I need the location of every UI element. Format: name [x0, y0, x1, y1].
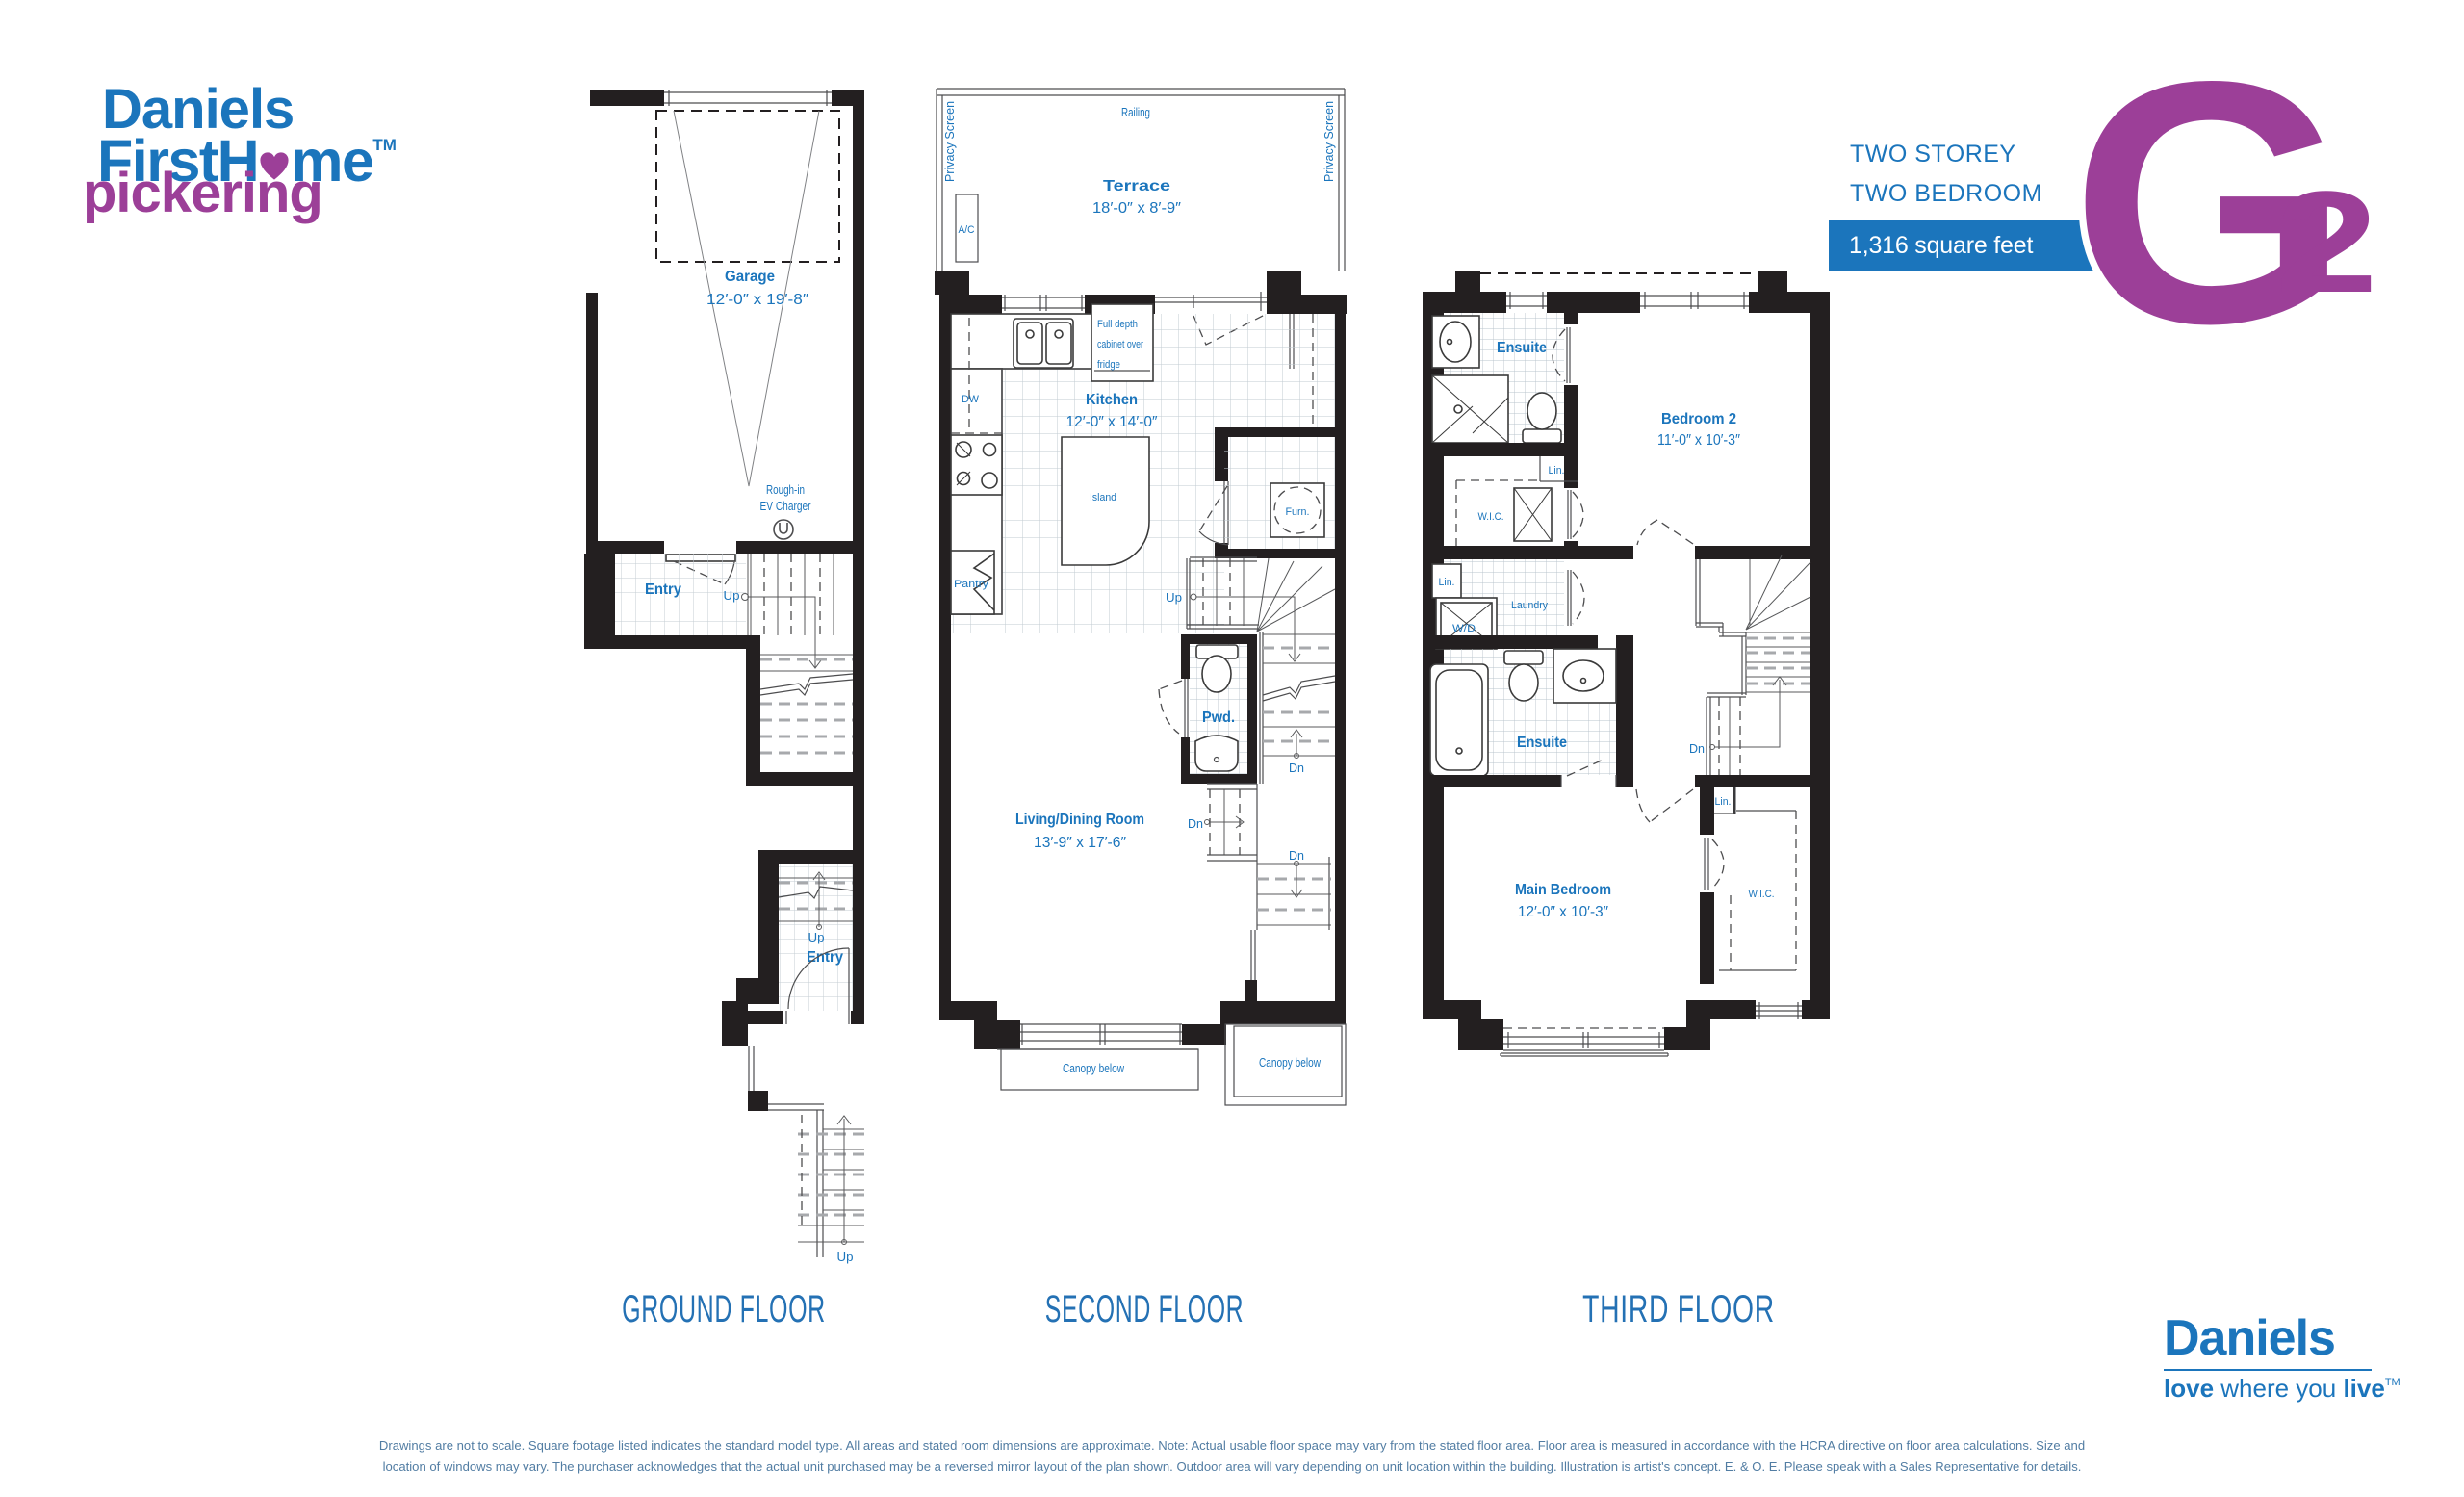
svg-text:W/D: W/D [1452, 623, 1476, 634]
svg-text:Entry: Entry [645, 581, 681, 598]
svg-text:Lin.: Lin. [1549, 465, 1565, 477]
svg-text:Up: Up [837, 1251, 854, 1264]
svg-text:DW: DW [962, 394, 980, 405]
svg-text:Dn: Dn [1289, 761, 1304, 775]
svg-text:cabinet over: cabinet over [1097, 339, 1143, 350]
svg-text:Furn.: Furn. [1286, 506, 1310, 518]
svg-text:Lin.: Lin. [1715, 796, 1732, 808]
svg-text:Full depth: Full depth [1097, 319, 1138, 330]
svg-text:Up: Up [1166, 591, 1182, 605]
svg-text:Dn: Dn [1289, 849, 1304, 863]
svg-text:Terrace: Terrace [1103, 178, 1170, 194]
svg-text:A/C: A/C [959, 224, 975, 236]
svg-text:Up: Up [724, 589, 740, 603]
svg-text:12′-0″ x 14′-0″: 12′-0″ x 14′-0″ [1066, 414, 1159, 430]
svg-text:W.I.C.: W.I.C. [1749, 889, 1775, 900]
svg-text:Privacy Screen: Privacy Screen [943, 101, 957, 182]
svg-text:Up: Up [808, 931, 825, 944]
svg-text:Railing: Railing [1121, 106, 1150, 119]
svg-text:Canopy below: Canopy below [1063, 1062, 1125, 1075]
svg-text:Living/Dining Room: Living/Dining Room [1015, 812, 1144, 828]
svg-text:11′-0″ x 10′-3″: 11′-0″ x 10′-3″ [1657, 432, 1740, 449]
svg-text:Kitchen: Kitchen [1086, 392, 1138, 408]
svg-text:Bedroom 2: Bedroom 2 [1661, 411, 1736, 427]
svg-text:Lin.: Lin. [1439, 577, 1455, 588]
svg-text:Laundry: Laundry [1511, 600, 1548, 611]
svg-text:13′-9″ x 17′-6″: 13′-9″ x 17′-6″ [1034, 835, 1127, 851]
svg-text:18′-0″ x 8′-9″: 18′-0″ x 8′-9″ [1092, 200, 1182, 217]
svg-text:Privacy Screen: Privacy Screen [1322, 101, 1336, 182]
svg-text:Pantry: Pantry [954, 579, 989, 590]
svg-text:Garage: Garage [725, 269, 775, 285]
svg-text:Entry: Entry [807, 949, 843, 966]
svg-text:Dn: Dn [1689, 742, 1705, 756]
svg-text:Main Bedroom: Main Bedroom [1515, 882, 1611, 898]
svg-text:Canopy below: Canopy below [1259, 1056, 1322, 1070]
svg-text:12′-0″ x 19′-8″: 12′-0″ x 19′-8″ [706, 292, 809, 308]
svg-text:Ensuite: Ensuite [1517, 735, 1567, 751]
svg-text:Rough-in: Rough-in [766, 483, 805, 497]
svg-text:Pwd.: Pwd. [1202, 710, 1235, 726]
svg-text:Island: Island [1090, 492, 1116, 503]
svg-text:W.I.C.: W.I.C. [1478, 511, 1504, 523]
svg-text:Dn: Dn [1188, 817, 1203, 831]
svg-text:EV Charger: EV Charger [760, 500, 811, 513]
svg-text:fridge: fridge [1097, 359, 1120, 371]
svg-text:Ensuite: Ensuite [1497, 340, 1547, 356]
svg-text:12′-0″ x 10′-3″: 12′-0″ x 10′-3″ [1518, 904, 1608, 920]
